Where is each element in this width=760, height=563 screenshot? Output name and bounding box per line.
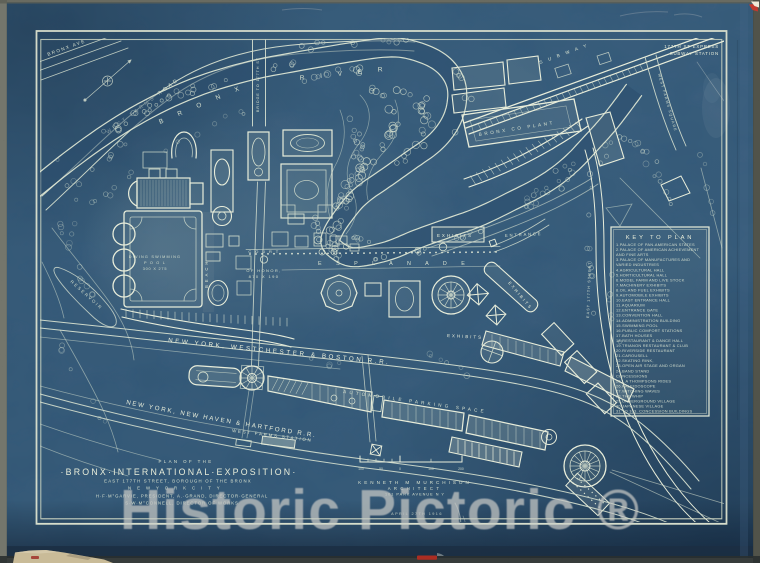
svg-text:E S P L A N A D E: E S P L A N A D E [318,261,471,267]
svg-text:0: 0 [399,467,401,471]
svg-text:100: 100 [428,467,434,471]
svg-text:·BRONX·INTERNATIONAL·EXPOSITIO: ·BRONX·INTERNATIONAL·EXPOSITION· [61,467,298,477]
svg-text:EXHIBITS: EXHIBITS [437,233,473,238]
svg-text:OF HONOR,: OF HONOR, [246,268,281,273]
svg-text:177TH ST EXPRESS: 177TH ST EXPRESS [664,44,719,49]
svg-text:50: 50 [379,467,383,471]
svg-text:DIVING SWIMMING: DIVING SWIMMING [129,255,181,259]
svg-text:®: ® [597,478,639,542]
svg-text:300 X 275: 300 X 275 [143,267,168,271]
svg-text:100: 100 [358,467,364,471]
svg-text:870 X 190: 870 X 190 [249,274,280,279]
svg-text:PLAN OF THE: PLAN OF THE [158,459,213,464]
svg-text:200: 200 [458,467,464,471]
svg-text:Historic Pictoric: Historic Pictoric [120,478,576,542]
svg-text:KEY TO PLAN: KEY TO PLAN [626,235,695,241]
svg-text:P O O L: P O O L [144,261,166,265]
svg-text:BRIDGE TO 177TH ST: BRIDGE TO 177TH ST [256,57,260,112]
svg-text:SUBWAY STATION: SUBWAY STATION [670,51,719,56]
